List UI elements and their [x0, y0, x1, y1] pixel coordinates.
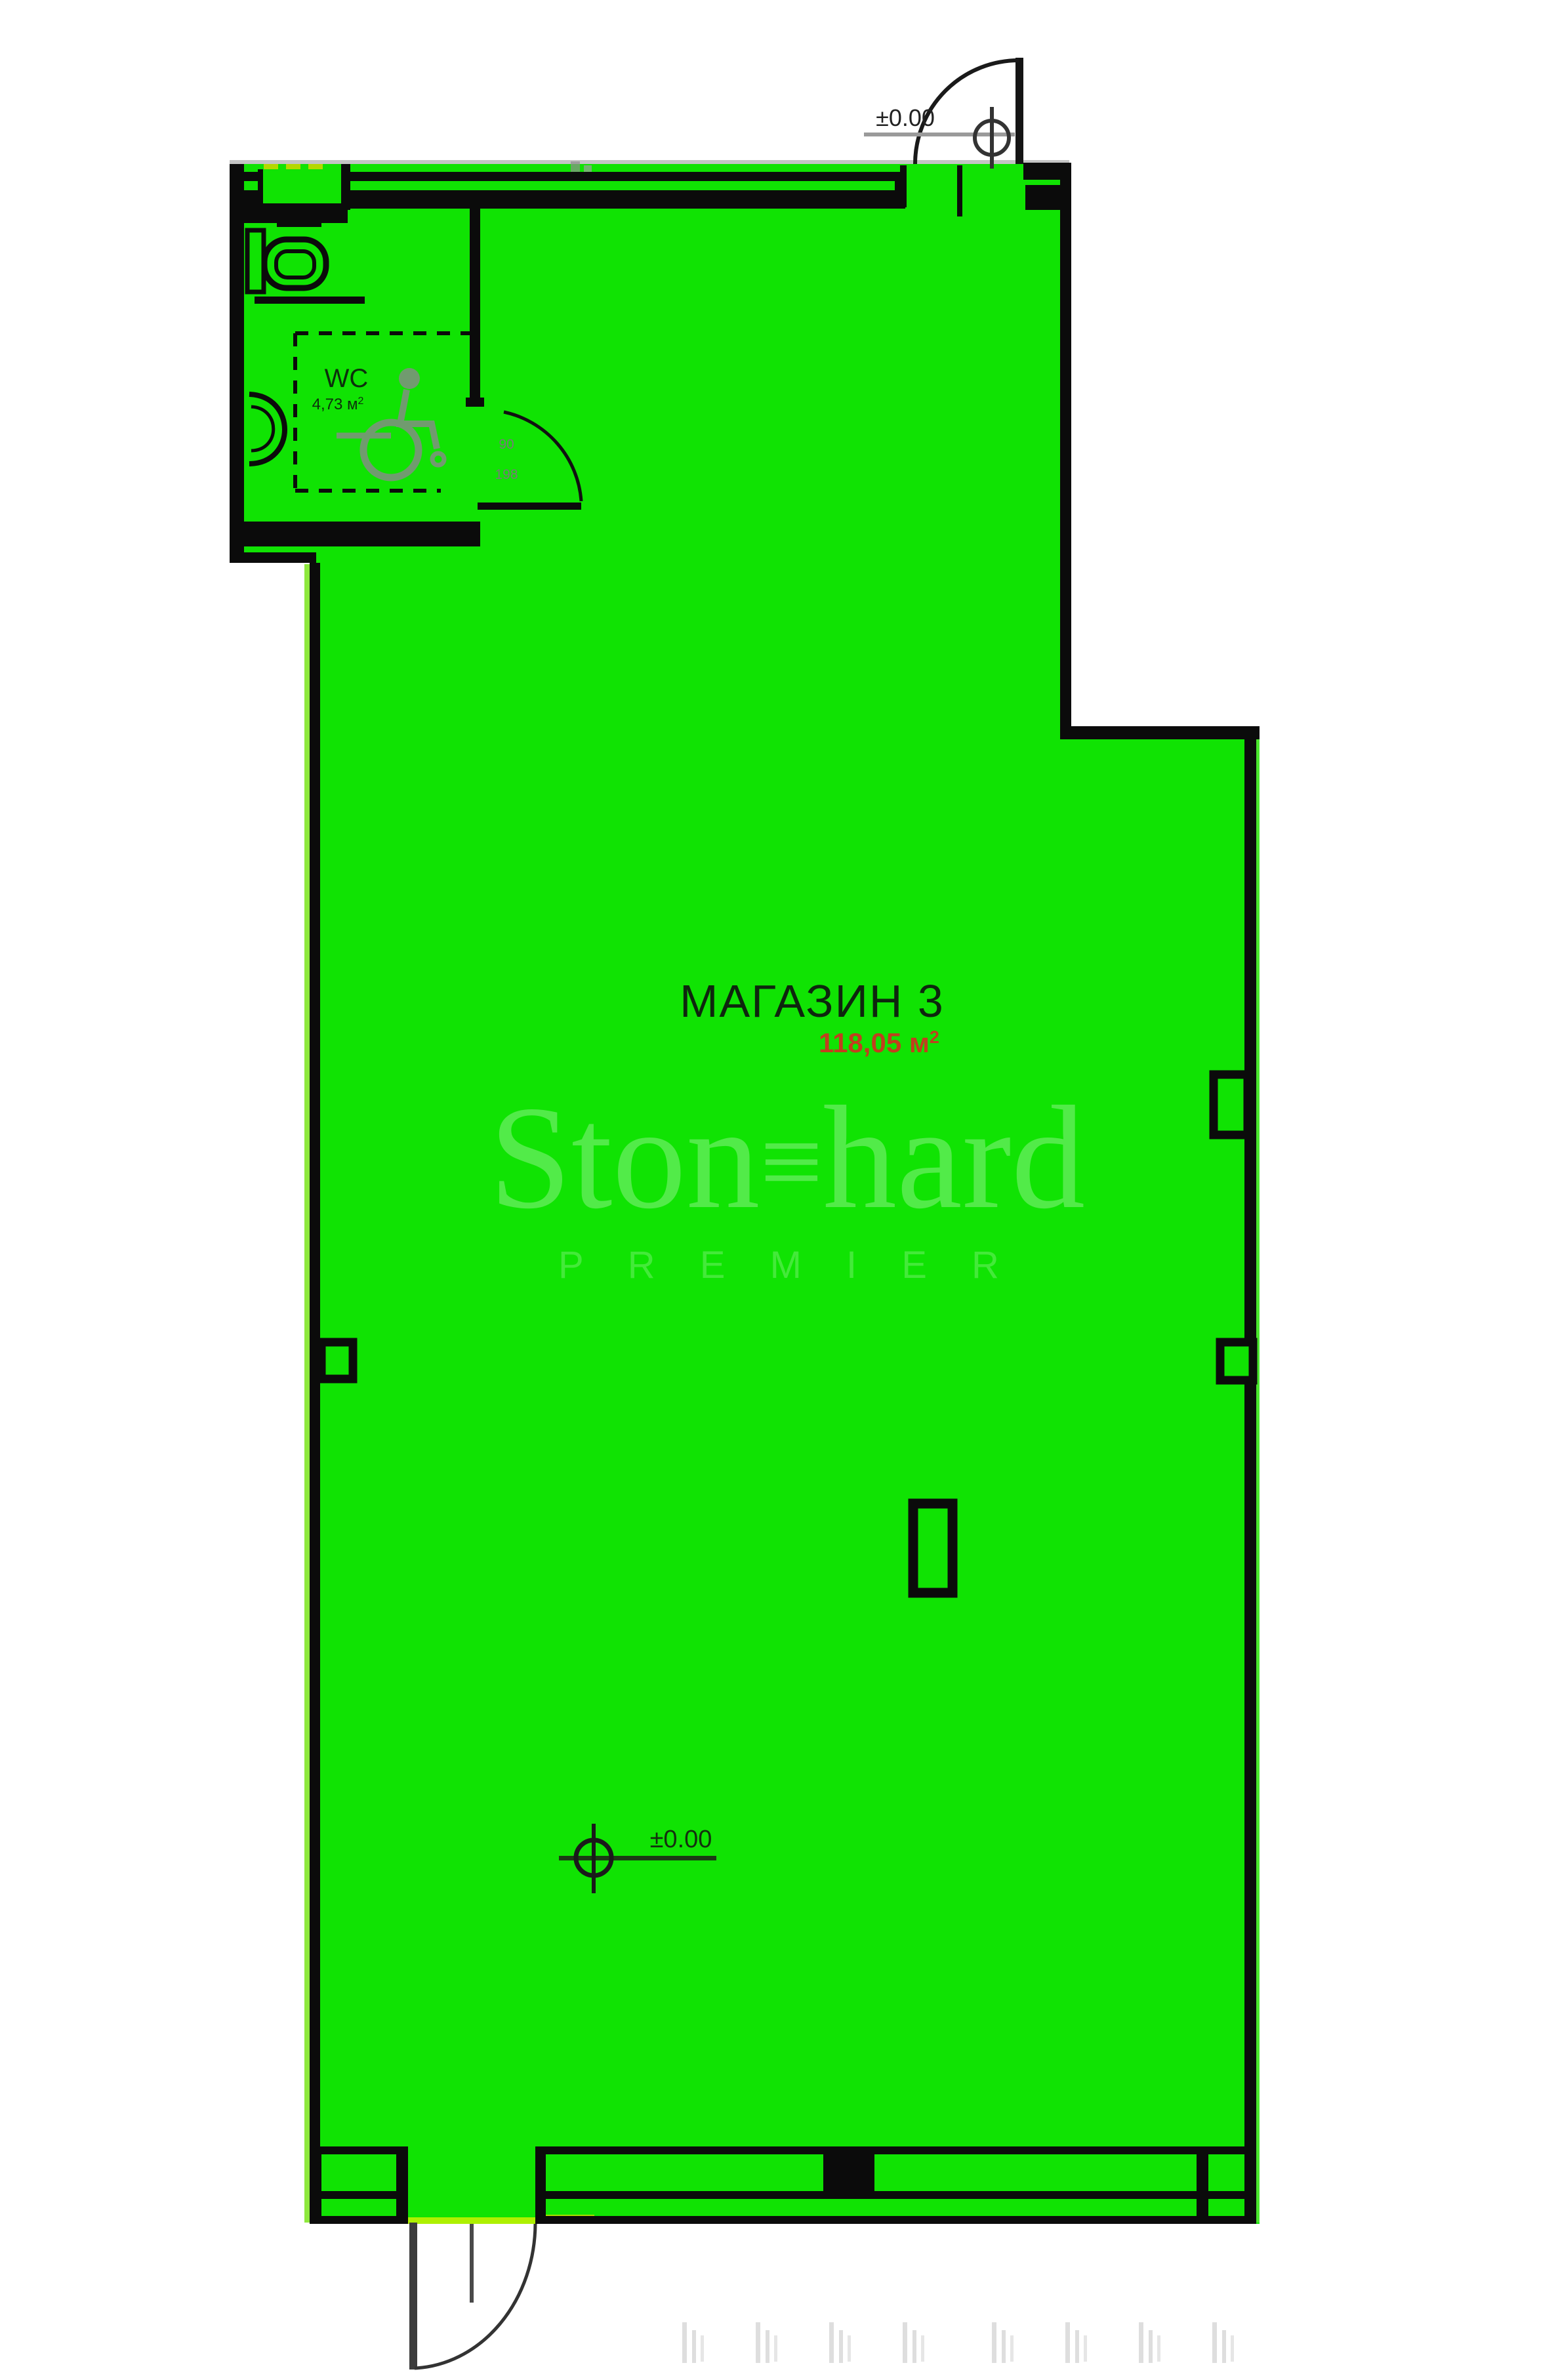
wall-right-upper: [1060, 164, 1071, 728]
wc-area-value: 4,73 м: [312, 396, 358, 413]
wc-door-height-label: 198: [495, 467, 518, 482]
wall-topleft-inner: [230, 207, 348, 223]
wall-bottom-r1: [535, 2146, 1256, 2154]
pier: [823, 2153, 874, 2196]
wall-bottom-l2: [310, 2191, 408, 2199]
wc-door-leaf: [478, 503, 581, 510]
level-label-top: ±0.00: [876, 104, 935, 131]
riser-box-left-small: [321, 1342, 353, 1379]
wall-bottom-l1: [310, 2146, 408, 2154]
wall-wc-divider: [470, 207, 480, 407]
riser-box-right-tall: [1214, 1075, 1248, 1135]
wc-door-width-label: 90: [499, 437, 514, 452]
top-gray-line: [230, 160, 1069, 164]
mullion-corner-right: [1244, 2146, 1256, 2224]
watermark-part1: Ston: [489, 1075, 760, 1239]
top-door-stop-line: [957, 165, 962, 216]
riser-box-right-small: [1220, 1342, 1253, 1380]
niche-dash-2: [286, 164, 300, 169]
mullion-1: [396, 2146, 408, 2224]
wc-title: WC: [325, 364, 369, 393]
watermark-brand: Ston≡hard: [489, 1075, 1085, 1239]
watermark-premier: P R E M I E R: [558, 1244, 1016, 1286]
wall-left-upper: [230, 164, 244, 563]
wall-right-lower: [1244, 728, 1256, 2224]
wall-right-step: [1060, 726, 1260, 739]
bottom-door-arc: [415, 2224, 535, 2368]
niche-dash-3: [308, 164, 323, 169]
wall-wc-bottom: [236, 522, 480, 546]
wall-bottom-r3: [535, 2216, 1256, 2224]
wall-bottom-l3: [310, 2216, 408, 2224]
benchmark-cross-top: [990, 107, 994, 169]
mullion-corner-left: [310, 2146, 321, 2224]
mullion-3: [1197, 2146, 1208, 2224]
counter-line: [255, 297, 365, 304]
wall-left-step: [230, 552, 316, 563]
floorplan-page: ±0.00 ±0.00 МАГАЗИН 3 118,05 м2 WC 4,73 …: [0, 0, 1558, 2380]
level-line-floor: [559, 1856, 716, 1860]
level-label-floor: ±0.00: [650, 1826, 712, 1853]
accent-bottom-door: [408, 2217, 535, 2224]
bottom-door-frame-line: [470, 2224, 474, 2303]
benchmark-cross-floor: [592, 1824, 596, 1893]
niche-dash-1: [264, 164, 278, 169]
faint-bottom-marks: [682, 2322, 1234, 2363]
top-door-leaf: [1015, 58, 1023, 164]
floorplan-canvas: ±0.00 ±0.00 МАГАЗИН 3 118,05 м2 WC 4,73 …: [0, 0, 1558, 2380]
room-title: МАГАЗИН 3: [680, 975, 945, 1027]
bottom-door-leaf: [409, 2223, 417, 2370]
wall-bottom-r2: [535, 2191, 1256, 2199]
niche-left: [258, 169, 263, 209]
room-area-value: 118,05 м: [819, 1027, 930, 1058]
wc-area: 4,73 м2: [312, 396, 364, 413]
level-benchmark-top: ±0.00: [864, 104, 1015, 169]
wall-wc-divider-cap: [466, 398, 484, 407]
mullion-2: [535, 2146, 546, 2224]
wall-left-lower: [310, 563, 320, 2224]
edge-sliver-left: [304, 564, 310, 2223]
wc-area-sup: 2: [358, 396, 363, 407]
watermark-e-symbol: ≡: [760, 1100, 823, 1223]
top-door-jamb: [900, 165, 907, 207]
room-area: 118,05 м2: [819, 1027, 939, 1058]
room-area-sup: 2: [930, 1027, 939, 1047]
column: [913, 1504, 953, 1593]
niche-right: [341, 164, 350, 210]
niche-fill: [258, 169, 346, 206]
watermark: Ston≡hard P R E M I E R: [489, 1075, 1085, 1286]
watermark-part2: hard: [823, 1075, 1085, 1239]
